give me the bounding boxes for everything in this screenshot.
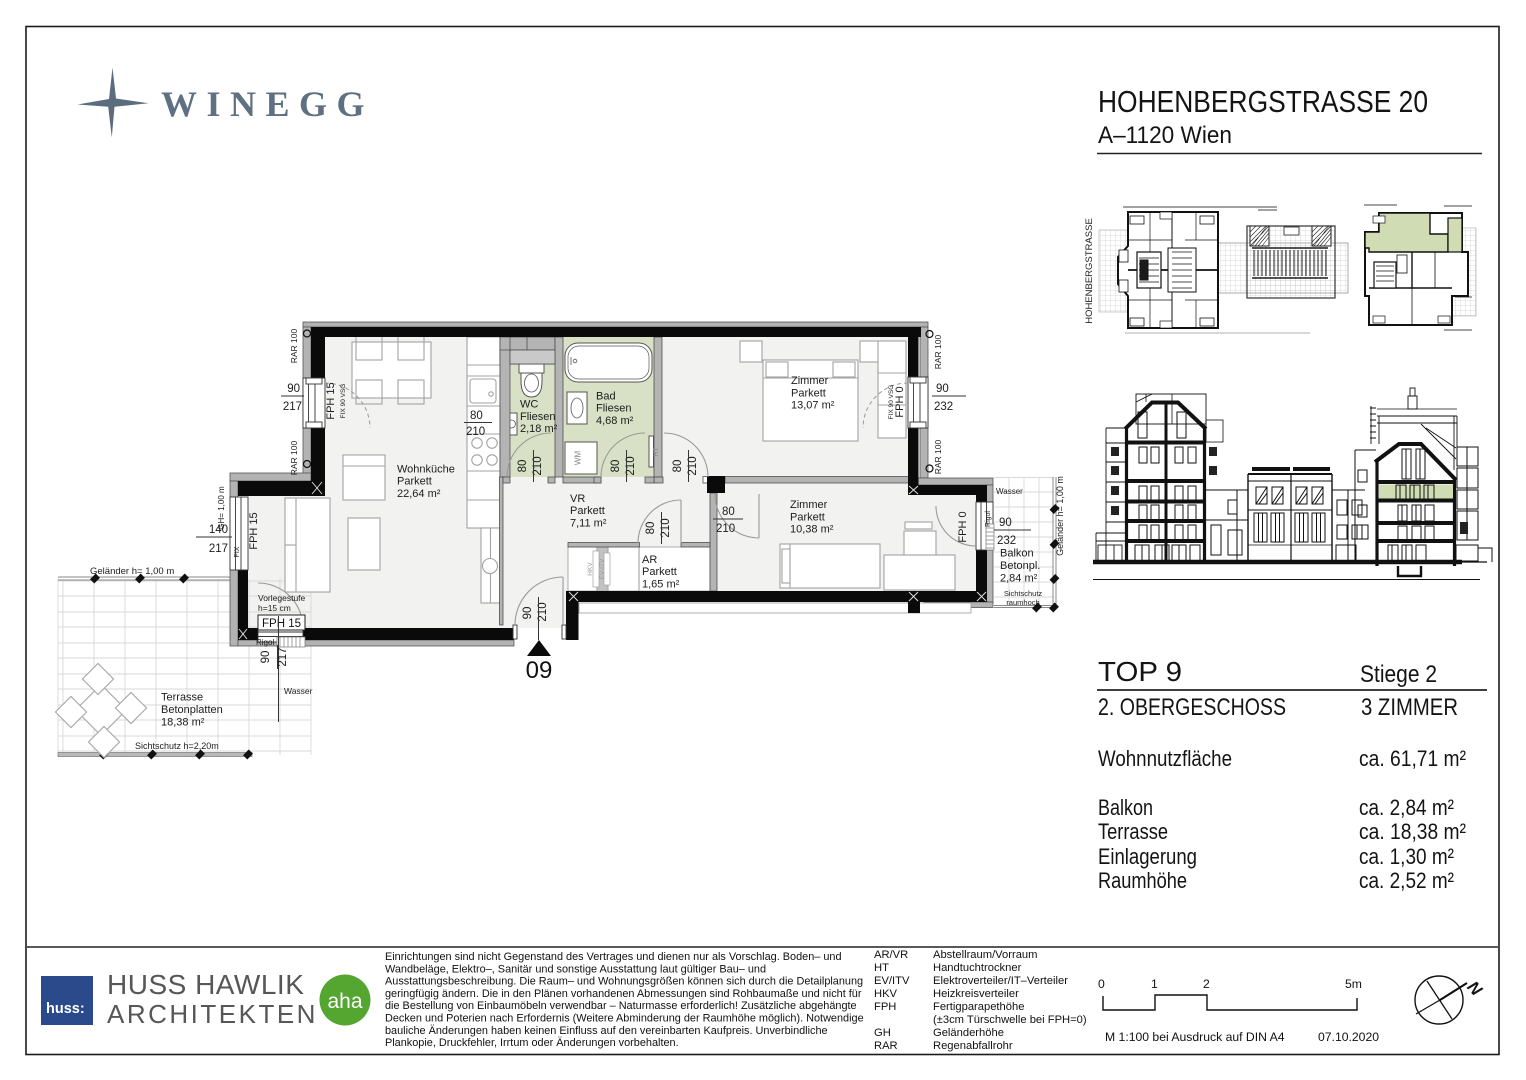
- svg-text:HT: HT: [874, 962, 889, 974]
- svg-text:Einlagerung: Einlagerung: [1098, 844, 1197, 869]
- svg-text:FPH 15: FPH 15: [262, 618, 301, 630]
- svg-text:80: 80: [722, 506, 735, 518]
- svg-text:Terrasse: Terrasse: [1098, 819, 1168, 844]
- svg-text:Plankopie, Druckfehler, Irrtum: Plankopie, Druckfehler, Irrtum oder Ände…: [385, 1037, 679, 1049]
- svg-text:Fertigparapethöhe: Fertigparapethöhe: [933, 1001, 1024, 1013]
- svg-text:210: 210: [716, 523, 735, 535]
- svg-text:Bad: Bad: [596, 391, 616, 403]
- svg-text:Vorlegestufe: Vorlegestufe: [258, 593, 306, 603]
- svg-text:217: 217: [277, 647, 289, 666]
- svg-text:Sichtschutz h=2,20m: Sichtschutz h=2,20m: [135, 741, 219, 751]
- svg-text:90: 90: [260, 651, 272, 664]
- svg-text:1,65 m²: 1,65 m²: [642, 578, 680, 590]
- svg-text:WC: WC: [520, 399, 538, 411]
- svg-text:Einrichtungen sind nicht Gegen: Einrichtungen sind nicht Gegenstand des …: [385, 951, 842, 963]
- svg-text:Terrasse: Terrasse: [161, 692, 203, 704]
- svg-text:Wohnküche: Wohnküche: [397, 463, 455, 475]
- svg-text:Raumhöhe: Raumhöhe: [1098, 868, 1187, 893]
- svg-text:Geländerhöhe: Geländerhöhe: [933, 1027, 1004, 1039]
- svg-text:Rigol: Rigol: [985, 511, 992, 527]
- svg-text:Parkett: Parkett: [642, 566, 677, 578]
- svg-text:geringfügig ändern. Die in den: geringfügig ändern. Die in den Plänen vo…: [385, 988, 862, 1000]
- svg-text:Abstellraum/Vorraum: Abstellraum/Vorraum: [933, 949, 1037, 961]
- svg-text:90: 90: [287, 383, 300, 395]
- svg-text:Zimmer: Zimmer: [790, 499, 828, 511]
- svg-text:3 ZIMMER: 3 ZIMMER: [1361, 694, 1458, 721]
- svg-text:VR: VR: [570, 493, 585, 505]
- svg-text:HUSS HAWLIK: HUSS HAWLIK: [107, 969, 304, 1000]
- svg-text:RAR 100: RAR 100: [933, 334, 943, 369]
- svg-text:ARCHITEKTEN: ARCHITEKTEN: [107, 999, 318, 1029]
- svg-text:Sichtschutz: Sichtschutz: [1004, 589, 1043, 598]
- svg-text:die Bestellung von Einbaumöbel: die Bestellung von Einbaumöbeln verwendb…: [385, 1000, 857, 1012]
- svg-text:Parkett: Parkett: [791, 387, 826, 399]
- svg-text:Betonplatten: Betonplatten: [161, 704, 223, 716]
- svg-text:huss:: huss:: [46, 1001, 85, 1017]
- svg-text:RAR 100: RAR 100: [933, 439, 943, 474]
- svg-text:232: 232: [934, 401, 953, 413]
- svg-text:Zimmer: Zimmer: [791, 375, 829, 387]
- svg-text:Heizkreisverteiler: Heizkreisverteiler: [933, 988, 1019, 1000]
- svg-text:HKV: HKV: [874, 988, 898, 1000]
- svg-text:GH: GH: [874, 1027, 891, 1039]
- svg-text:Balkon: Balkon: [1098, 795, 1153, 820]
- svg-text:1: 1: [1151, 977, 1158, 991]
- svg-text:FPH: FPH: [874, 1001, 896, 1013]
- svg-text:80: 80: [610, 460, 622, 473]
- svg-text:WM: WM: [574, 451, 583, 466]
- svg-text:FPH 15: FPH 15: [325, 382, 337, 419]
- svg-text:217: 217: [209, 543, 228, 555]
- svg-text:ca. 1,30 m²: ca. 1,30 m²: [1359, 844, 1454, 869]
- svg-text:bauliche Änderungen haben kein: bauliche Änderungen haben keinen Einflus…: [385, 1025, 828, 1037]
- svg-text:Betonpl.: Betonpl.: [1000, 560, 1040, 572]
- svg-text:07.10.2020: 07.10.2020: [1318, 1030, 1379, 1044]
- svg-text:Geländer h= 1,00 m: Geländer h= 1,00 m: [1055, 476, 1065, 556]
- svg-text:RAR: RAR: [874, 1040, 898, 1052]
- svg-text:HKV: HKV: [587, 562, 594, 576]
- svg-text:Parkett: Parkett: [397, 476, 432, 488]
- svg-text:ca. 2,84 m²: ca. 2,84 m²: [1359, 795, 1454, 820]
- svg-text:90: 90: [522, 607, 534, 620]
- svg-text:Handtuchtrockner: Handtuchtrockner: [933, 962, 1022, 974]
- svg-text:2. OBERGESCHOSS: 2. OBERGESCHOSS: [1098, 694, 1286, 721]
- svg-text:WINEGG: WINEGG: [161, 84, 374, 124]
- svg-text:ca. 2,52 m²: ca. 2,52 m²: [1359, 868, 1454, 893]
- svg-text:M 1:100 bei Ausdruck auf DIN A: M 1:100 bei Ausdruck auf DIN A4: [1105, 1030, 1285, 1044]
- svg-text:A–1120 Wien: A–1120 Wien: [1098, 122, 1232, 149]
- svg-text:80: 80: [645, 522, 657, 535]
- svg-text:FIX 90 VSG: FIX 90 VSG: [340, 384, 347, 419]
- svg-text:80: 80: [517, 460, 529, 473]
- svg-text:Stiege 2: Stiege 2: [1360, 661, 1437, 688]
- svg-text:HOHENBERGSTRASSE: HOHENBERGSTRASSE: [1084, 218, 1095, 324]
- svg-text:HOHENBERGSTRASSE 20: HOHENBERGSTRASSE 20: [1098, 85, 1428, 119]
- svg-text:80: 80: [470, 410, 483, 422]
- svg-text:Wohnnutzfläche: Wohnnutzfläche: [1098, 746, 1232, 771]
- svg-text:TOP 9: TOP 9: [1098, 656, 1182, 687]
- svg-text:aha: aha: [327, 990, 362, 1013]
- svg-text:Parkett: Parkett: [790, 511, 825, 523]
- svg-text:2: 2: [1203, 977, 1210, 991]
- svg-text:Regenabfallrohr: Regenabfallrohr: [933, 1040, 1013, 1052]
- svg-text:Elektroverteiler/IT–Verteiler: Elektroverteiler/IT–Verteiler: [933, 975, 1068, 987]
- svg-text:18,38 m²: 18,38 m²: [161, 717, 205, 729]
- svg-text:Fliesen: Fliesen: [520, 411, 555, 423]
- svg-text:RAR 100: RAR 100: [289, 440, 299, 475]
- svg-text:140: 140: [209, 524, 228, 536]
- svg-text:210: 210: [466, 426, 485, 438]
- svg-text:2,18 m²: 2,18 m²: [520, 423, 558, 435]
- svg-text:raumhoch: raumhoch: [1006, 598, 1039, 607]
- svg-text:h=15 cm: h=15 cm: [258, 603, 291, 613]
- svg-text:EV-ITV: EV-ITV: [599, 558, 606, 579]
- svg-text:FPH 15: FPH 15: [248, 512, 260, 549]
- svg-text:22,64 m²: 22,64 m²: [397, 488, 441, 500]
- svg-text:Ausstattungsbeschreibung. Die: Ausstattungsbeschreibung. Die Raum– und …: [385, 976, 863, 988]
- svg-text:RAR 100: RAR 100: [289, 328, 299, 363]
- svg-text:Decken und Poterien nach Erfor: Decken und Poterien nach Erfordernis (We…: [385, 1013, 864, 1025]
- svg-text:09: 09: [526, 657, 553, 684]
- svg-text:Parkett: Parkett: [570, 505, 605, 517]
- svg-text:0: 0: [1098, 977, 1105, 991]
- svg-text:ca. 61,71 m²: ca. 61,71 m²: [1359, 746, 1466, 771]
- svg-text:232: 232: [997, 535, 1016, 547]
- svg-text:FIX: FIX: [234, 546, 241, 557]
- svg-text:Wandbeläge, Elektro–, Sanitär: Wandbeläge, Elektro–, Sanitär und sonsti…: [385, 963, 766, 975]
- svg-text:ca. 18,38 m²: ca. 18,38 m²: [1359, 819, 1466, 844]
- svg-text:EV/ITV: EV/ITV: [874, 975, 910, 987]
- svg-text:Wasser: Wasser: [996, 487, 1023, 496]
- svg-text:2,84 m²: 2,84 m²: [1000, 573, 1038, 585]
- svg-text:(±3cm Türschwelle bei FPH=0): (±3cm Türschwelle bei FPH=0): [933, 1014, 1087, 1026]
- svg-text:7,11 m²: 7,11 m²: [570, 517, 607, 529]
- svg-text:4,68 m²: 4,68 m²: [596, 415, 634, 427]
- svg-text:FPH 0: FPH 0: [894, 386, 906, 417]
- svg-text:217: 217: [283, 401, 302, 413]
- svg-text:HT: HT: [653, 447, 660, 457]
- svg-text:90: 90: [999, 517, 1012, 529]
- svg-text:FPH 0: FPH 0: [957, 511, 969, 542]
- svg-text:80: 80: [672, 460, 684, 473]
- svg-text:Fliesen: Fliesen: [596, 403, 631, 415]
- svg-text:FIX 90 VSG: FIX 90 VSG: [888, 385, 895, 420]
- svg-text:13,07 m²: 13,07 m²: [791, 400, 835, 412]
- svg-text:5m: 5m: [1345, 977, 1362, 991]
- svg-text:90: 90: [936, 383, 949, 395]
- svg-text:AR/VR: AR/VR: [874, 949, 908, 961]
- svg-text:Geländer h= 1,00 m: Geländer h= 1,00 m: [90, 566, 174, 577]
- svg-text:Wasser: Wasser: [284, 686, 313, 696]
- svg-text:10,38 m²: 10,38 m²: [790, 524, 834, 536]
- svg-text:AR: AR: [642, 554, 657, 566]
- svg-text:Balkon: Balkon: [1000, 548, 1034, 560]
- svg-text:Rigol: Rigol: [256, 638, 274, 647]
